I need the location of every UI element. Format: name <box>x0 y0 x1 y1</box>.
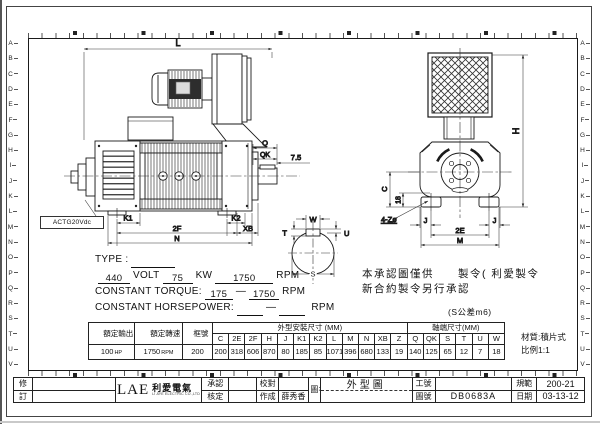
made-label: 作成 <box>257 390 278 403</box>
dim-col-letter: H <box>261 334 277 345</box>
table-header-row1: 額定輸出 額定轉速 框號 外型安裝尺寸 (MM) 軸端尺寸(MM) <box>89 323 505 334</box>
row-letter: F <box>578 117 592 124</box>
row-letter: H <box>6 147 20 154</box>
drawing-name-label-col: 圖名 <box>308 378 320 402</box>
dim-col-letter: T <box>456 334 472 345</box>
row-letter: Q <box>578 285 592 292</box>
proof-label-col: 校對 作成 <box>256 378 278 402</box>
kw-label: KW <box>196 270 213 281</box>
dim-col-letter: J <box>277 334 293 345</box>
dim-value: 185 <box>294 345 310 360</box>
dim-value: 7 <box>472 345 488 360</box>
row-letter: J <box>6 178 20 185</box>
checked-label: 核定 <box>202 390 228 403</box>
col-rated-output: 額定輸出 <box>89 323 135 345</box>
row-letter: I <box>6 162 20 169</box>
dim-value: 1071 <box>326 345 342 360</box>
dim-value: 12 <box>456 345 472 360</box>
workno-label-col: 工號 圖號 <box>412 378 435 402</box>
approval-note-line2: 新合約製令另行承認 <box>362 281 470 296</box>
row-letter: S <box>6 315 20 322</box>
row-letter: D <box>578 86 592 93</box>
volt-value: 440 <box>98 271 130 284</box>
row-letter: L <box>6 208 20 215</box>
dim-value: 125 <box>423 345 439 360</box>
row-letter: R <box>578 300 592 307</box>
row-letter: N <box>578 239 592 246</box>
dim-col-letter: QK <box>423 334 439 345</box>
row-letter: V <box>6 361 20 368</box>
dim-col-letter: Q <box>407 334 423 345</box>
approved-value <box>229 378 256 390</box>
drawing-sheet: { "sheet": { "row_letters": ["A","B","C"… <box>0 0 600 424</box>
dim-value: 18 <box>488 345 504 360</box>
approval-note-line1: 本承認圖僅供 製令( 利愛製令 <box>362 266 539 281</box>
dim-col-letter: K1 <box>294 334 310 345</box>
logo-lae-text: LAE <box>117 383 149 398</box>
tolerance-note: (S公差m6) <box>448 306 492 318</box>
workno-value-col: DB0683A <box>435 378 512 402</box>
drawing-title: 外型圖 <box>321 378 412 391</box>
approval-label-col: 承認 核定 <box>201 378 228 402</box>
sheet-edge-bottom <box>0 421 600 423</box>
dim-value: 200 <box>213 345 229 360</box>
date-label: 日期 <box>512 390 536 403</box>
scale-note: 比例1:1 <box>521 344 550 356</box>
torque-dash: — <box>236 286 246 297</box>
col-frame-no: 框號 <box>183 323 213 345</box>
spec-rating-line: 440VOLT75KW1750RPM <box>95 268 335 284</box>
dim-value: 19 <box>391 345 407 360</box>
hp-unit: RPM <box>311 302 334 313</box>
dim-col-letter: 2F <box>245 334 261 345</box>
row-letter: J <box>578 178 592 185</box>
row-letter: D <box>6 86 20 93</box>
revision-entry-top <box>33 378 115 390</box>
title-block: 修 訂 LAE 利愛電氣 LI AYE ELECTRIC CO.,LTD 承認 … <box>13 377 585 403</box>
drawing-no-value: DB0683A <box>436 390 512 403</box>
dim-value: 606 <box>245 345 261 360</box>
row-letter: S <box>578 315 592 322</box>
type-blank <box>131 255 175 268</box>
dim-col-letter: N <box>358 334 374 345</box>
dim-value: 80 <box>277 345 293 360</box>
logo-company-en: LI AYE ELECTRIC CO.,LTD <box>152 393 200 397</box>
row-letter: C <box>578 71 592 78</box>
torque-label: CONSTANT TORQUE: <box>95 286 202 297</box>
row-letter: O <box>578 254 592 261</box>
spec-hp-line: CONSTANT HORSEPOWER:— RPM <box>95 300 335 316</box>
row-letter: M <box>578 224 592 231</box>
row-letter: E <box>578 101 592 108</box>
company-logo: LAE 利愛電氣 LI AYE ELECTRIC CO.,LTD <box>116 378 202 402</box>
logo-right: 利愛電氣 LI AYE ELECTRIC CO.,LTD <box>152 384 200 397</box>
revision-entry-bottom <box>33 390 115 403</box>
approval-value-col <box>228 378 256 402</box>
torque-to: 1750 <box>249 287 279 300</box>
proof-value <box>279 378 308 390</box>
dim-col-letter: L <box>326 334 342 345</box>
row-letter: B <box>578 55 592 62</box>
kw-value: 75 <box>163 271 193 284</box>
drawing-no-label: 圖號 <box>413 390 435 403</box>
row-letter: G <box>6 132 20 139</box>
dim-value: 870 <box>261 345 277 360</box>
ruler-top <box>28 30 578 38</box>
dim-col-letter: K2 <box>310 334 326 345</box>
row-letter: A <box>6 40 20 47</box>
spec-block: TYPE : 440VOLT75KW1750RPM CONSTANT TORQU… <box>95 252 335 316</box>
row-letter: M <box>6 224 20 231</box>
volt-label: VOLT <box>133 270 160 281</box>
frame-no-value: 200 <box>183 345 213 360</box>
col-rated-speed: 額定轉速 <box>135 323 183 345</box>
dim-col-letter: C <box>213 334 229 345</box>
row-letter: B <box>6 55 20 62</box>
made-value: 薛秀香 <box>279 390 308 403</box>
spec-value: 200-21 <box>537 378 584 390</box>
dim-col-letter: Z <box>391 334 407 345</box>
proof-label: 校對 <box>257 378 278 390</box>
row-letter: N <box>6 239 20 246</box>
sheet-edge-left <box>0 0 2 424</box>
row-letter: P <box>6 270 20 277</box>
row-letter: A <box>578 40 592 47</box>
row-letter: L <box>578 208 592 215</box>
row-letter: U <box>578 346 592 353</box>
dim-col-letter: XB <box>375 334 391 345</box>
spec-value-col: 200-21 03-13-12 <box>536 378 584 402</box>
drawing-title-bottom <box>321 391 412 403</box>
proof-value-col: 薛秀香 <box>278 378 308 402</box>
torque-from: 175 <box>205 287 233 300</box>
work-no-label: 工號 <box>413 378 435 390</box>
company-logo-col: LAE 利愛電氣 LI AYE ELECTRIC CO.,LTD <box>115 378 202 402</box>
drawing-title-col: 外型圖 <box>320 378 412 402</box>
row-letter: K <box>578 193 592 200</box>
hp-to <box>279 303 305 316</box>
rated-speed-value: 1750RPM <box>135 345 183 360</box>
checked-value <box>229 390 256 403</box>
dim-col-letter: U <box>472 334 488 345</box>
dim-col-letter: 2E <box>229 334 245 345</box>
row-letter: O <box>6 254 20 261</box>
row-letter: Q <box>6 285 20 292</box>
row-letter: I <box>578 162 592 169</box>
dim-col-letter: S <box>440 334 456 345</box>
dim-value: 680 <box>358 345 374 360</box>
row-letter: T <box>6 331 20 338</box>
approved-label: 承認 <box>202 378 228 390</box>
table-value-row: 100HP 1750RPM 200 2003186068708018585107… <box>89 345 505 360</box>
hp-from <box>237 303 263 316</box>
row-letter: V <box>578 361 592 368</box>
rpm-label: RPM <box>276 270 299 281</box>
row-letter: C <box>6 71 20 78</box>
torque-unit: RPM <box>282 286 305 297</box>
coords-left: ABCDEFGHIJKLMNOPQRSTUV <box>6 0 22 424</box>
dim-value: 65 <box>440 345 456 360</box>
row-letter: P <box>578 270 592 277</box>
outline-dims-header: 外型安裝尺寸 (MM) <box>213 323 408 334</box>
shaft-dims-header: 軸端尺寸(MM) <box>407 323 504 334</box>
spec-label: 規範 <box>512 378 536 390</box>
dim-value: 396 <box>342 345 358 360</box>
row-letter: T <box>578 331 592 338</box>
spec-label-col: 規範 日期 <box>511 378 536 402</box>
revision-label-bottom: 訂 <box>14 390 32 403</box>
row-letter: H <box>578 147 592 154</box>
dim-col-letter: M <box>342 334 358 345</box>
revision-entry-col <box>32 378 115 402</box>
row-letter: G <box>578 132 592 139</box>
revision-label-top: 修 <box>14 378 32 390</box>
work-no-value <box>436 378 512 390</box>
drawing-name-label: 圖名 <box>310 384 318 396</box>
dimension-table: 額定輸出 額定轉速 框號 外型安裝尺寸 (MM) 軸端尺寸(MM) C2E2FH… <box>88 322 505 360</box>
hp-dash: — <box>266 302 276 313</box>
row-letter: R <box>6 300 20 307</box>
dim-value: 318 <box>229 345 245 360</box>
revision-label-col: 修 訂 <box>14 378 32 402</box>
hp-label: CONSTANT HORSEPOWER: <box>95 302 234 313</box>
spec-torque-line: CONSTANT TORQUE:175—1750RPM <box>95 284 335 300</box>
row-letter: E <box>6 101 20 108</box>
tacho-label: ACTG20Vdc <box>40 216 104 229</box>
row-letter: K <box>6 193 20 200</box>
dim-value: 140 <box>407 345 423 360</box>
type-label: TYPE : <box>95 254 128 265</box>
rated-output-value: 100HP <box>89 345 135 360</box>
dim-value: 85 <box>310 345 326 360</box>
rpm-value: 1750 <box>215 271 273 284</box>
row-letter: U <box>6 346 20 353</box>
spec-type-line: TYPE : <box>95 252 335 268</box>
dim-value: 133 <box>375 345 391 360</box>
row-letter: F <box>6 117 20 124</box>
material-note: 材質:積片式 <box>521 331 566 343</box>
dim-col-letter: W <box>488 334 504 345</box>
coords-right: ABCDEFGHIJKLMNOPQRSTUV <box>578 0 594 424</box>
date-value: 03-13-12 <box>537 390 584 403</box>
